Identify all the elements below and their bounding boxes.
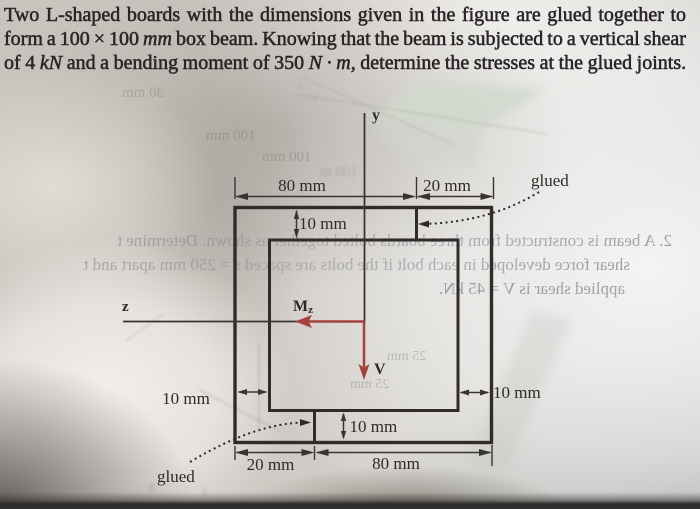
svg-text:10 mm: 10 mm — [299, 214, 347, 233]
svg-text:10 mm: 10 mm — [162, 389, 210, 408]
svg-text:y: y — [372, 107, 380, 124]
svg-text:80 mm: 80 mm — [372, 454, 420, 473]
svg-text:V: V — [374, 361, 386, 378]
svg-text:10 mm: 10 mm — [493, 383, 541, 402]
svg-text:glued: glued — [531, 171, 569, 190]
svg-text:20 mm: 20 mm — [423, 176, 471, 195]
svg-text:80 mm: 80 mm — [278, 176, 326, 195]
svg-text:Mz: Mz — [293, 298, 313, 316]
svg-text:20 mm: 20 mm — [247, 455, 295, 474]
svg-text:z: z — [122, 299, 129, 315]
svg-text:glued: glued — [157, 467, 195, 486]
svg-text:10 mm: 10 mm — [350, 417, 398, 436]
